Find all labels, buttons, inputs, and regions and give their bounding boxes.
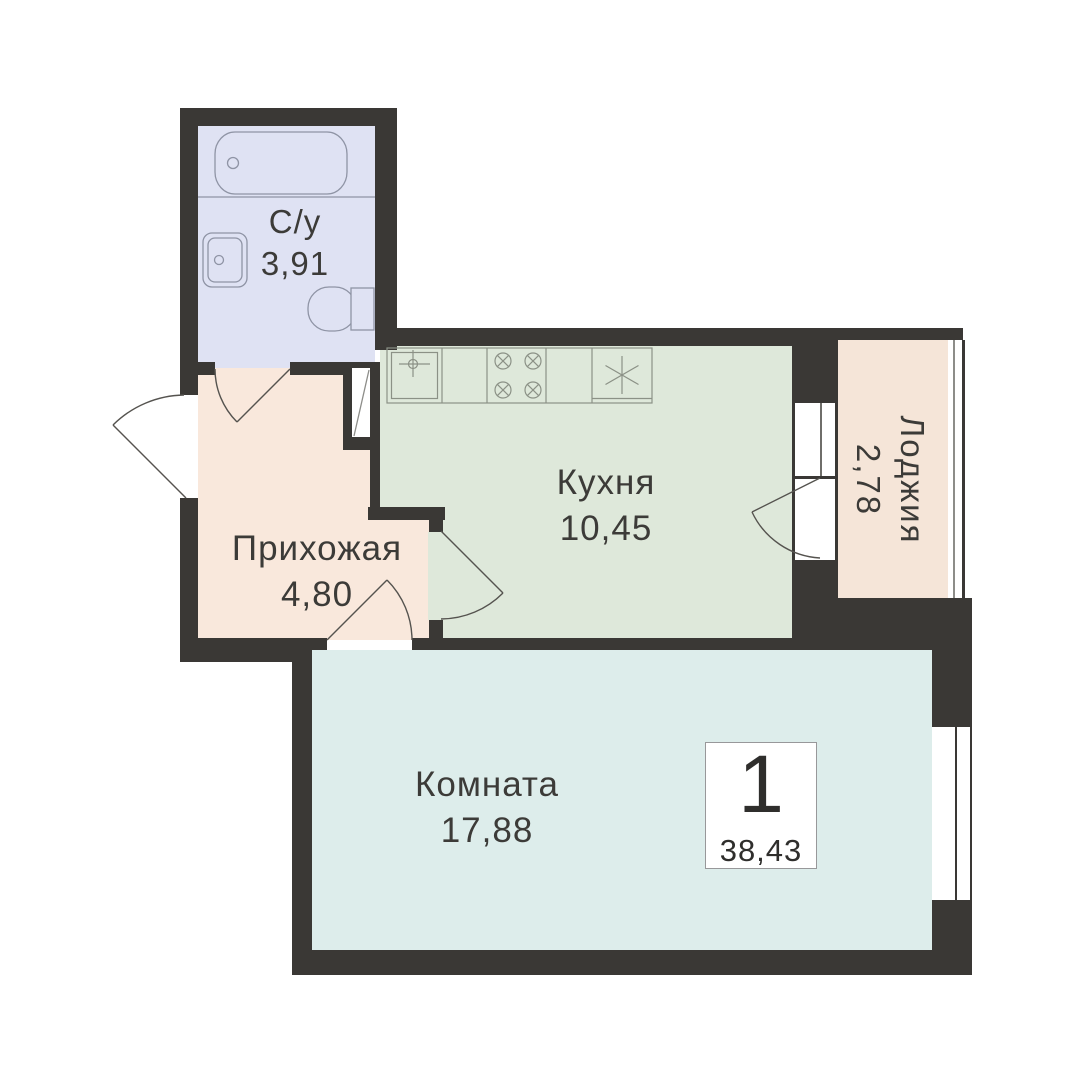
bathroom-name: С/у	[215, 201, 375, 243]
wall-loggia-top	[792, 328, 963, 340]
floor-plan: С/у 3,91 Прихожая 4,80 Кухня 10,45 Лоджи…	[0, 0, 1080, 1080]
kitchen-window-sill-line	[795, 476, 835, 479]
room-area-value: 17,88	[367, 808, 607, 854]
wall-vent-shaft-right	[370, 362, 380, 520]
wall-bathroom-left	[180, 108, 198, 395]
wall-room-top-west	[292, 638, 327, 650]
kitchen-window-band	[792, 403, 838, 560]
wall-kitchen-top	[375, 328, 838, 346]
wall-hall-kitchen-step	[368, 507, 445, 520]
loggia-area-value: 2,78	[846, 350, 890, 610]
hallway-label: Прихожая 4,80	[197, 526, 437, 618]
loggia-glazing-inner-line	[953, 340, 955, 598]
bathroom-area-value: 3,91	[215, 243, 375, 285]
wall-room-right-lower	[932, 902, 972, 975]
room-label: Комната 17,88	[367, 762, 607, 854]
room-name: Комната	[367, 762, 607, 808]
wall-bathroom-right	[375, 126, 397, 350]
loggia-glazing-outer-line	[962, 340, 965, 598]
wall-kitchen-door-stub-bottom	[429, 620, 443, 640]
entry-door-swing	[113, 395, 186, 498]
apartment-badge: 1 38,43	[705, 742, 817, 869]
hallway-area-value: 4,80	[197, 572, 437, 618]
wall-bathroom-bottom-left-stub	[198, 362, 215, 375]
kitchen-name: Кухня	[486, 460, 726, 506]
apartment-rooms-count: 1	[738, 745, 784, 825]
loggia-name: Лоджия	[890, 350, 934, 610]
bathroom-label: С/у 3,91	[215, 201, 375, 285]
apartment-total-area: 38,43	[720, 834, 803, 868]
hallway-name: Прихожая	[197, 526, 437, 572]
wall-room-bottom	[292, 950, 972, 975]
room-window-glazing-line	[955, 725, 957, 902]
wall-bathroom-top	[180, 108, 397, 126]
wall-kitchen-loggia-upper	[792, 346, 838, 403]
wall-room-left	[292, 650, 312, 975]
room-window-band	[932, 725, 972, 902]
wall-room-right-upper	[932, 650, 972, 725]
kitchen-window-glazing-line	[820, 403, 822, 476]
kitchen-label: Кухня 10,45	[486, 460, 726, 552]
vent-shaft-slot	[352, 368, 370, 437]
kitchen-area-value: 10,45	[486, 506, 726, 552]
loggia-label: Лоджия 2,78	[846, 350, 934, 610]
